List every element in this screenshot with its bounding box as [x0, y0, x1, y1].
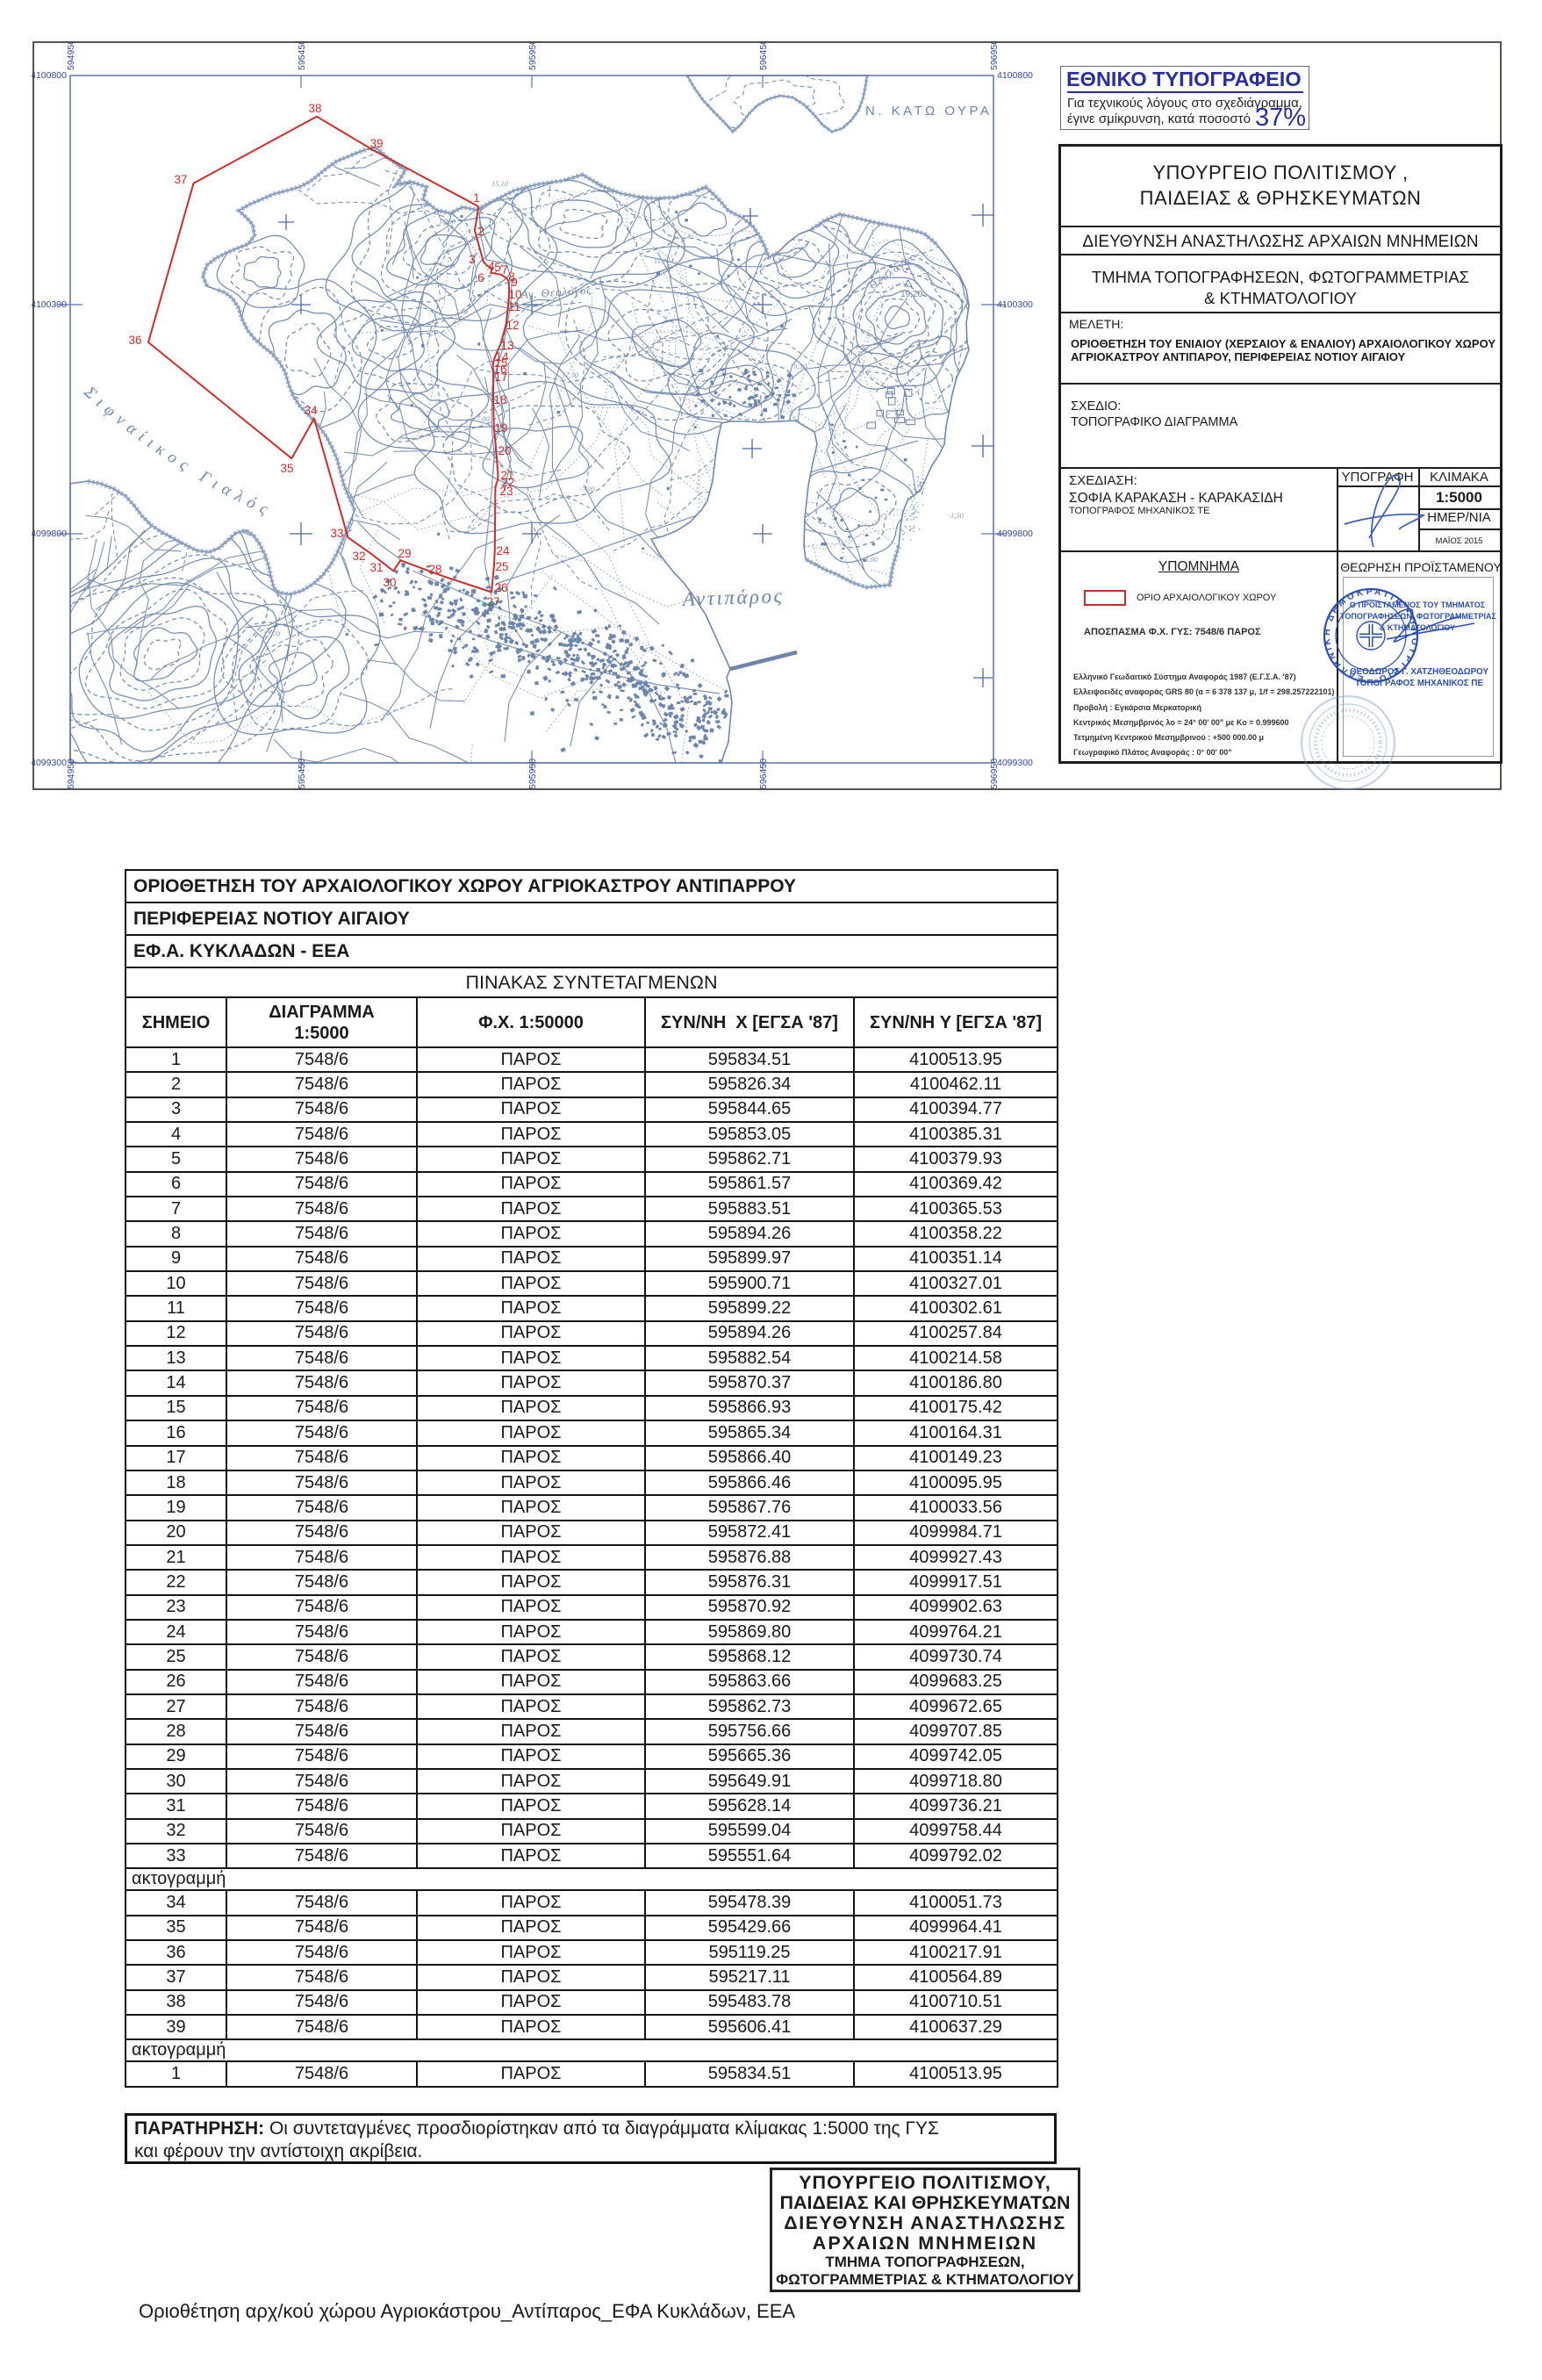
svg-text:10,50: 10,50 [790, 362, 807, 370]
svg-text:35: 35 [280, 462, 293, 475]
svg-text:4100300: 4100300 [997, 299, 1033, 310]
svg-text:-7,00: -7,00 [579, 485, 595, 493]
svg-text:11,90: 11,90 [654, 256, 671, 265]
svg-text:6: 6 [477, 271, 484, 284]
svg-text:29: 29 [398, 547, 411, 560]
svg-text:4099300: 4099300 [32, 758, 67, 768]
svg-text:1: 1 [473, 191, 480, 205]
svg-text:36: 36 [128, 334, 141, 347]
svg-text:31: 31 [369, 561, 383, 574]
svg-text:2: 2 [477, 225, 484, 238]
svg-text:15,10: 15,10 [491, 179, 509, 188]
svg-text:595950: 595950 [527, 759, 538, 789]
svg-text:20: 20 [498, 444, 511, 457]
svg-text:4100800: 4100800 [997, 70, 1033, 81]
svg-text:25: 25 [495, 560, 508, 573]
svg-text:30: 30 [383, 576, 396, 589]
svg-text:17: 17 [494, 370, 507, 384]
svg-text:16,30: 16,30 [439, 217, 456, 226]
svg-text:Αντιπάρος: Αντιπάρος [680, 585, 784, 610]
svg-text:26: 26 [494, 581, 507, 594]
svg-text:3,00: 3,00 [864, 555, 879, 564]
svg-text:28: 28 [428, 563, 441, 576]
svg-text:33: 33 [330, 527, 343, 540]
svg-text:Σιφναίικος Γιαλός: Σιφναίικος Γιαλός [80, 383, 276, 521]
svg-text:596450: 596450 [758, 41, 769, 70]
svg-text:595450: 595450 [297, 41, 307, 70]
svg-text:24: 24 [496, 544, 510, 557]
svg-text:17,70: 17,70 [263, 629, 281, 638]
svg-text:9: 9 [511, 276, 518, 289]
svg-text:595950: 595950 [527, 41, 538, 70]
svg-text:10: 10 [508, 288, 521, 301]
svg-text:596450: 596450 [758, 759, 769, 789]
svg-text:4099800: 4099800 [997, 528, 1033, 539]
svg-text:-7,00: -7,00 [474, 414, 490, 423]
svg-text:4100300: 4100300 [32, 299, 67, 310]
svg-text:11: 11 [508, 300, 520, 313]
svg-text:596950: 596950 [989, 41, 1000, 70]
svg-text:32: 32 [352, 550, 365, 563]
svg-text:17,50: 17,50 [562, 370, 579, 379]
svg-text:4099300: 4099300 [997, 758, 1033, 768]
svg-text:39: 39 [369, 137, 383, 150]
svg-text:19,20: 19,20 [900, 290, 922, 299]
svg-text:4099800: 4099800 [32, 528, 67, 539]
svg-text:38: 38 [308, 102, 321, 115]
svg-text:27: 27 [486, 595, 499, 608]
svg-text:18: 18 [493, 393, 506, 406]
svg-text:595450: 595450 [297, 759, 307, 789]
svg-text:5: 5 [494, 261, 501, 274]
svg-text:594950: 594950 [66, 41, 76, 70]
svg-text:19: 19 [494, 421, 507, 435]
svg-text:23: 23 [499, 485, 513, 498]
svg-text:12: 12 [506, 319, 519, 332]
svg-text:-1,50: -1,50 [948, 511, 964, 520]
svg-text:Ν. ΚΑΤΩ ΟΥΡΑ: Ν. ΚΑΤΩ ΟΥΡΑ [865, 104, 992, 119]
svg-text:594950: 594950 [66, 759, 76, 789]
svg-text:4100800: 4100800 [32, 70, 67, 81]
svg-text:34: 34 [304, 404, 318, 417]
svg-text:Αγ. Θεολόγος: Αγ. Θεολόγος [520, 283, 592, 301]
svg-text:7: 7 [501, 263, 508, 277]
svg-text:37: 37 [174, 173, 187, 186]
svg-text:3: 3 [469, 253, 476, 266]
